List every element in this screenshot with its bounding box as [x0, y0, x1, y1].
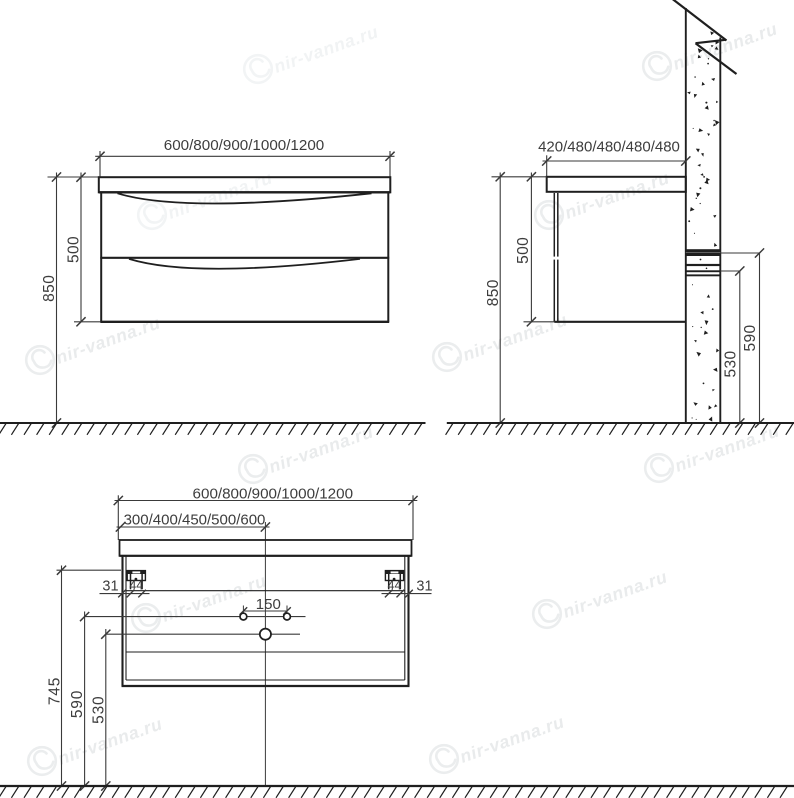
svg-text:600/800/900/1000/1200: 600/800/900/1000/1200 — [193, 485, 353, 502]
svg-text:590: 590 — [69, 690, 86, 718]
svg-text:850: 850 — [41, 275, 58, 302]
svg-text:590: 590 — [742, 324, 759, 351]
svg-text:530: 530 — [90, 696, 107, 724]
svg-text:31: 31 — [416, 578, 432, 594]
svg-text:44: 44 — [129, 579, 143, 593]
svg-text:150: 150 — [256, 596, 281, 613]
svg-text:44: 44 — [388, 579, 402, 593]
svg-text:600/800/900/1000/1200: 600/800/900/1000/1200 — [164, 137, 324, 154]
svg-text:530: 530 — [722, 350, 739, 377]
svg-text:420/480/480/480/480: 420/480/480/480/480 — [538, 139, 680, 156]
svg-text:850: 850 — [485, 279, 502, 306]
svg-text:31: 31 — [102, 578, 118, 594]
svg-text:745: 745 — [47, 677, 64, 705]
svg-text:500: 500 — [515, 237, 532, 264]
svg-text:500: 500 — [66, 236, 83, 263]
svg-text:300/400/450/500/600: 300/400/450/500/600 — [124, 511, 266, 528]
